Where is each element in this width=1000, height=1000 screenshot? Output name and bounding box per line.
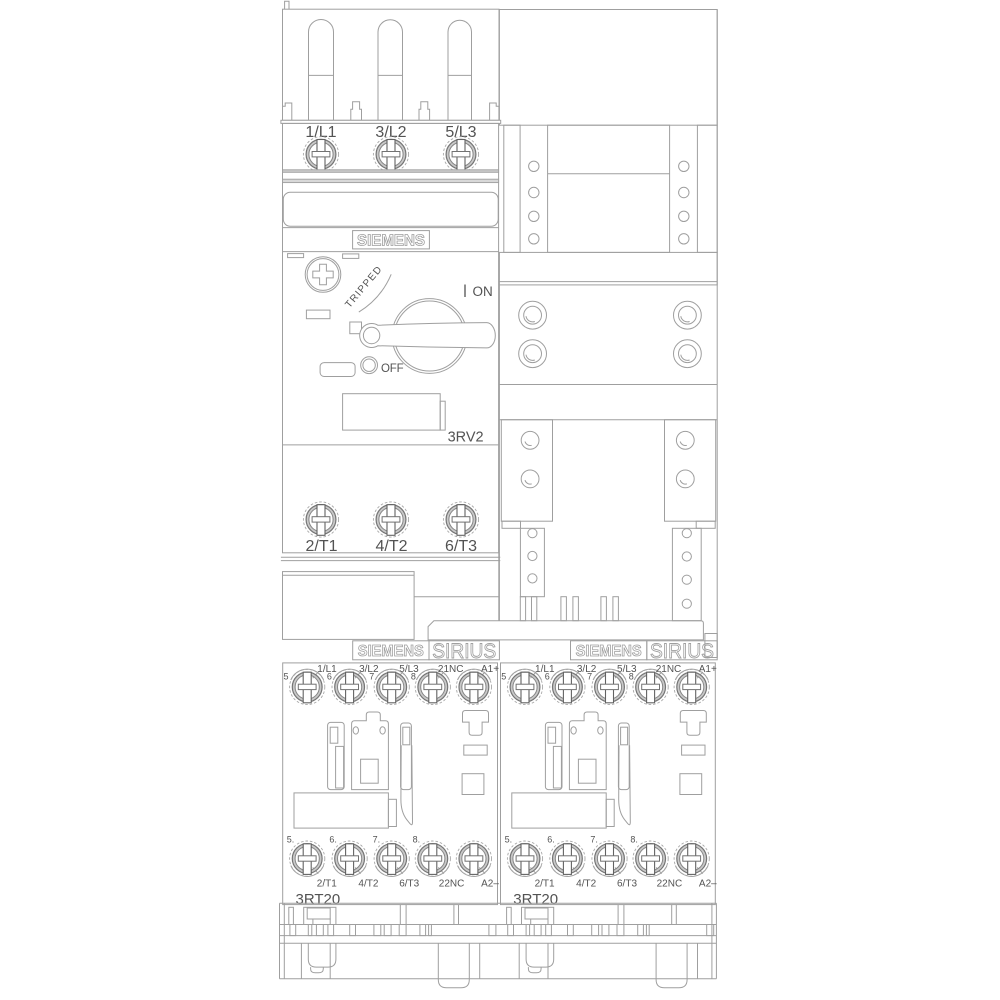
svg-text:3/L2: 3/L2 xyxy=(375,124,406,141)
svg-text:SIEMENS: SIEMENS xyxy=(357,233,425,250)
svg-text:6/T3: 6/T3 xyxy=(445,538,477,555)
svg-text:1/L1: 1/L1 xyxy=(305,124,336,141)
svg-text:5/L3: 5/L3 xyxy=(445,124,476,141)
svg-text:OFF: OFF xyxy=(381,363,404,375)
svg-text:3RV2: 3RV2 xyxy=(448,430,484,446)
svg-text:ON: ON xyxy=(473,284,493,299)
svg-text:4/T2: 4/T2 xyxy=(375,538,407,555)
svg-text:2/T1: 2/T1 xyxy=(305,538,337,555)
